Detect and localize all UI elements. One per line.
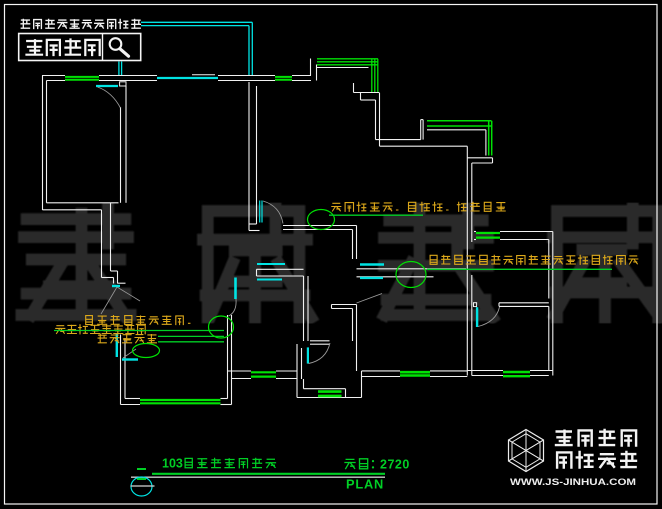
svg-text:PLAN: PLAN [346, 476, 384, 491]
svg-text:WWW.JS-JINHUA.COM: WWW.JS-JINHUA.COM [510, 477, 636, 488]
svg-text:2720: 2720 [380, 457, 410, 471]
svg-text:103: 103 [162, 457, 183, 471]
